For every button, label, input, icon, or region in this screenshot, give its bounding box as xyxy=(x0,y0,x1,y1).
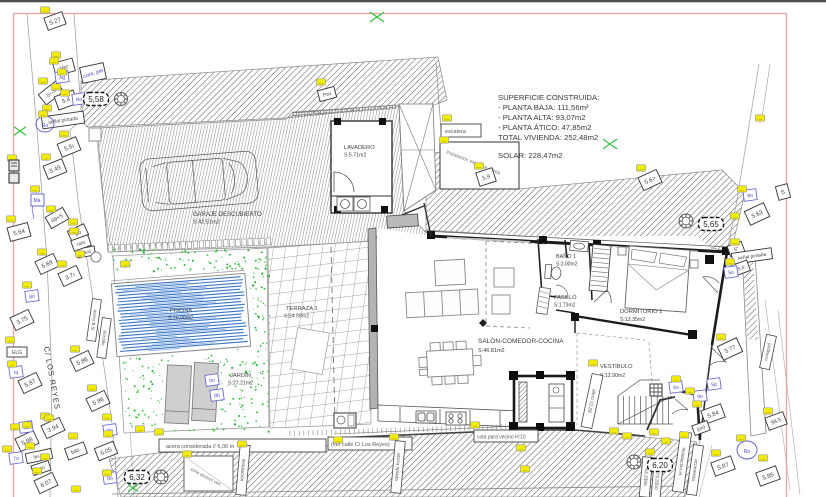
svg-text:S:46.81m2: S:46.81m2 xyxy=(478,348,505,354)
svg-text:- PLANTA ALTA: 93,07m2: - PLANTA ALTA: 93,07m2 xyxy=(498,113,586,122)
svg-text:BAÑO 1: BAÑO 1 xyxy=(556,253,576,260)
svg-text:JARDÍN: JARDÍN xyxy=(230,372,251,379)
svg-text:S:27.21m2: S:27.21m2 xyxy=(228,381,253,387)
svg-text:SUPERFICIE CONSTRUIDA:: SUPERFICIE CONSTRUIDA: xyxy=(498,93,599,102)
svg-text:6,32: 6,32 xyxy=(129,473,145,482)
svg-text:0o: 0o xyxy=(209,378,216,385)
svg-text:- PLANTA ÁTICO: 47,85m2: - PLANTA ÁTICO: 47,85m2 xyxy=(498,123,591,132)
svg-text:5,65: 5,65 xyxy=(703,220,719,229)
svg-text:S:24.59m2: S:24.59m2 xyxy=(284,314,309,320)
svg-text:9o: 9o xyxy=(697,394,704,401)
svg-text:7o: 7o xyxy=(13,456,20,463)
svg-text:PISCINA: PISCINA xyxy=(170,308,192,314)
svg-text:GARAJE DESCUBIERTO: GARAJE DESCUBIERTO xyxy=(193,212,262,218)
svg-text:8b: 8b xyxy=(214,393,221,400)
svg-text:S:42.51m2: S:42.51m2 xyxy=(193,220,220,226)
svg-text:S:12.90m2: S:12.90m2 xyxy=(600,373,625,379)
svg-text:SALÓN-COMEDOR-COCINA: SALÓN-COMEDOR-COCINA xyxy=(478,336,564,345)
svg-text:8o: 8o xyxy=(29,294,36,301)
svg-text:cota para vecino H:10: cota para vecino H:10 xyxy=(477,435,526,441)
svg-text:5,58: 5,58 xyxy=(88,95,104,104)
svg-text:acera considerada // 6,00 m: acera considerada // 6,00 m xyxy=(166,444,235,450)
svg-text:5p: 5p xyxy=(711,382,718,389)
svg-text:S:1.73m2: S:1.73m2 xyxy=(554,303,576,309)
svg-text:- PLANTA BAJA: 111,56m²: - PLANTA BAJA: 111,56m² xyxy=(498,103,589,112)
svg-text:ELG: ELG xyxy=(12,350,22,356)
svg-text:6,20: 6,20 xyxy=(652,461,668,470)
svg-text:S:3.00m2: S:3.00m2 xyxy=(556,262,578,268)
svg-text:5o: 5o xyxy=(728,270,735,277)
svg-text:Ma: Ma xyxy=(34,198,41,204)
svg-text:PASILLO: PASILLO xyxy=(554,295,577,301)
svg-text:S:5.71m2: S:5.71m2 xyxy=(344,153,366,159)
svg-text:5o: 5o xyxy=(673,385,680,392)
svg-text:9o: 9o xyxy=(747,193,754,200)
svg-text:S:13.35m2: S:13.35m2 xyxy=(620,317,645,323)
svg-text:0o: 0o xyxy=(107,476,114,483)
svg-text:S:16,00m2: S:16,00m2 xyxy=(168,316,193,322)
svg-text:Ag: Ag xyxy=(59,75,66,82)
svg-text:escalera: escalera xyxy=(445,129,467,135)
svg-text:Ro: Ro xyxy=(42,123,49,129)
svg-text:No: No xyxy=(76,97,83,104)
svg-text:TOTAL VIVIENDA: 252,48m2: TOTAL VIVIENDA: 252,48m2 xyxy=(498,133,598,142)
svg-text:SOLAR: 228,47m2: SOLAR: 228,47m2 xyxy=(498,151,563,160)
svg-text:LAVADERO: LAVADERO xyxy=(344,145,375,151)
svg-text:Ro: Ro xyxy=(744,449,751,455)
svg-text:VESTÍBULO: VESTÍBULO xyxy=(600,363,633,370)
svg-text:DORMITORIO 1: DORMITORIO 1 xyxy=(620,309,662,315)
svg-text:TERRAZA 1: TERRAZA 1 xyxy=(286,306,318,312)
